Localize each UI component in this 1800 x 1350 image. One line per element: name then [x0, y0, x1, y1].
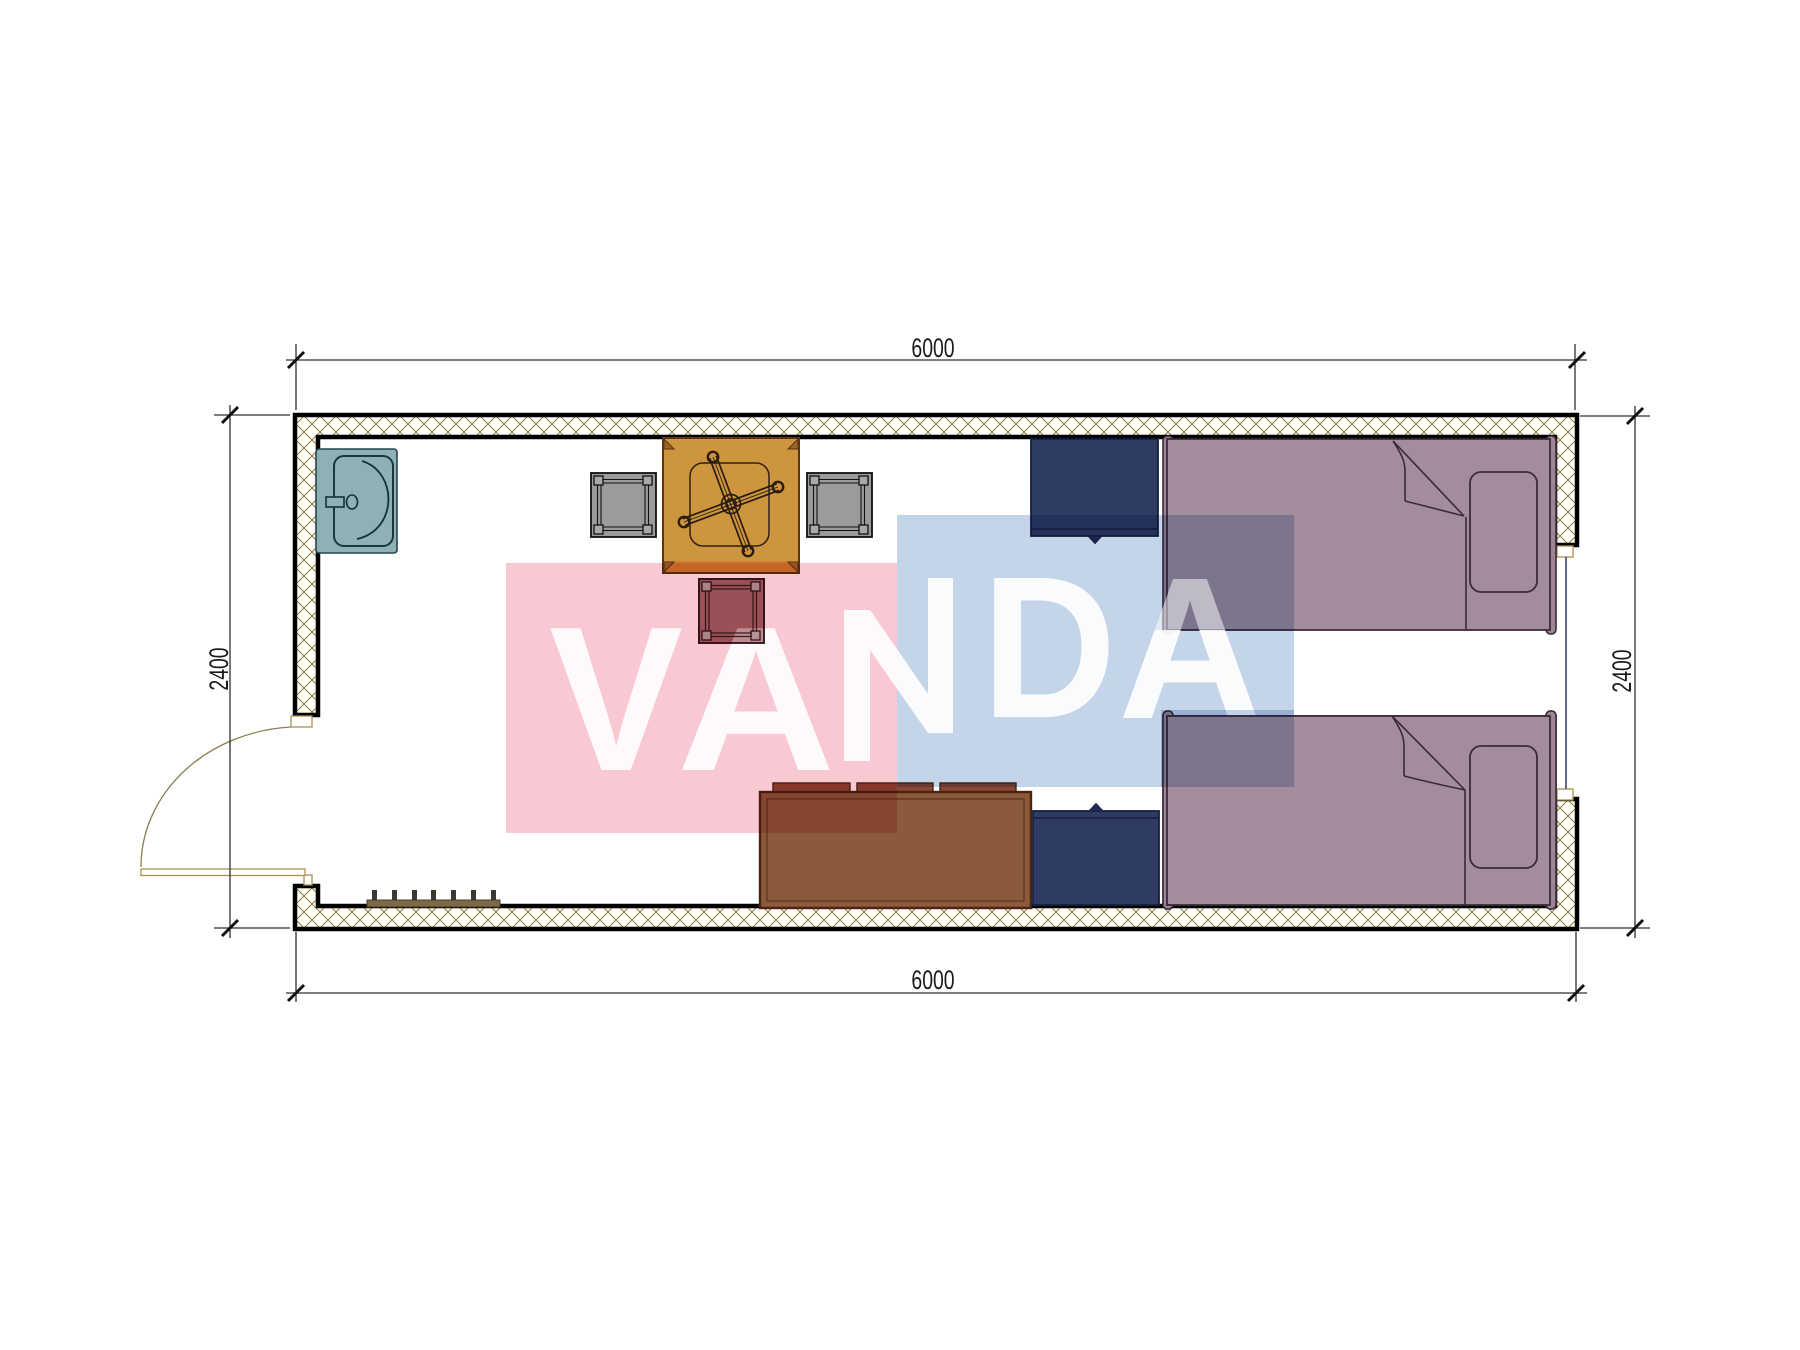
svg-text:2400: 2400	[204, 647, 234, 690]
svg-text:D: D	[982, 535, 1117, 761]
svg-text:V: V	[549, 585, 683, 815]
svg-text:6000: 6000	[911, 965, 954, 995]
svg-text:6000: 6000	[911, 333, 954, 363]
svg-text:2400: 2400	[1607, 649, 1637, 692]
